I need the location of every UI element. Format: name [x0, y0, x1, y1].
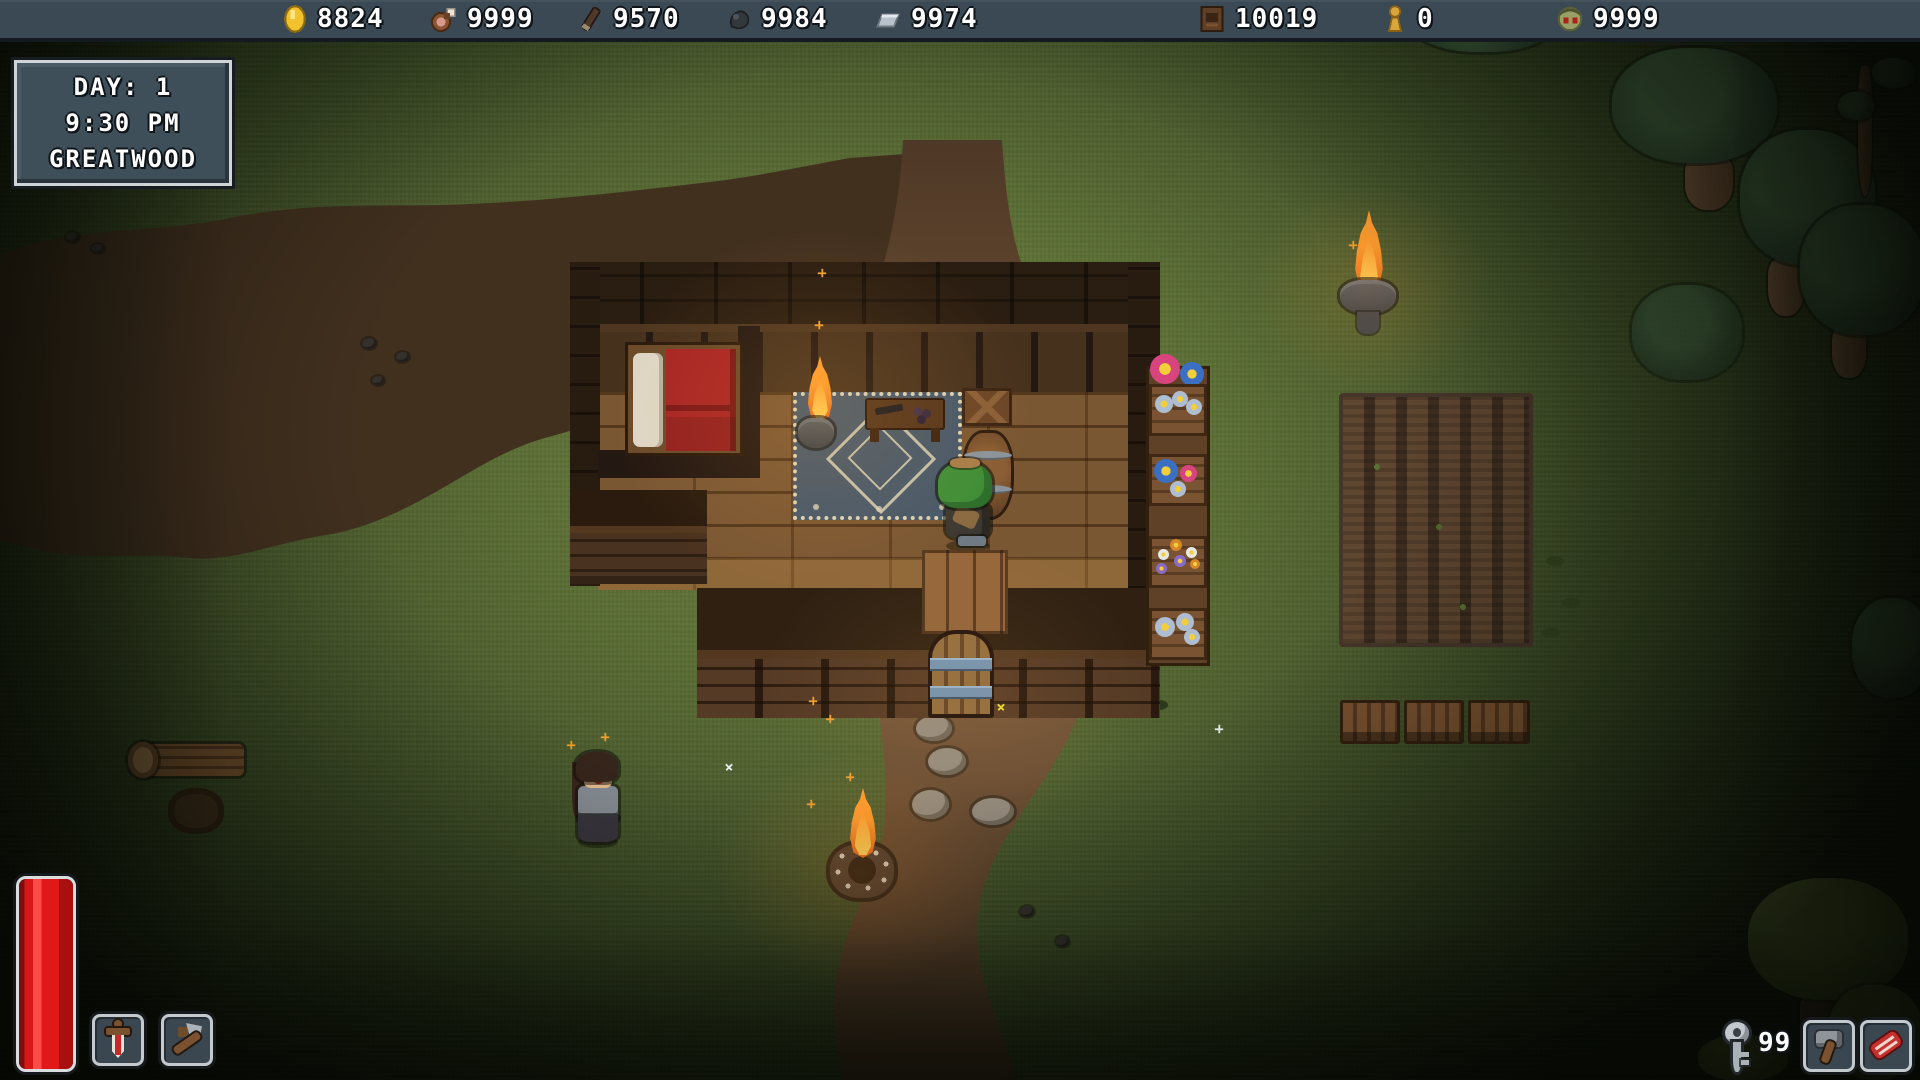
pebble — [92, 244, 104, 253]
pebble — [372, 376, 384, 385]
hotbar-slot-sword[interactable] — [92, 1014, 144, 1066]
campfire-flame — [848, 788, 878, 858]
resource-food: 9999 — [430, 4, 534, 34]
sparkle-icon — [1349, 241, 1357, 249]
zombie-head-icon — [1556, 4, 1584, 34]
day-label: DAY: 1 — [74, 69, 173, 105]
tree-canopy — [1612, 48, 1777, 163]
pebble — [362, 338, 376, 349]
sparkle-icon — [815, 321, 823, 329]
resource-value: 9974 — [911, 4, 978, 34]
stepping-stone — [916, 716, 952, 741]
fallen-log[interactable] — [128, 742, 246, 778]
drumstick-icon — [430, 4, 458, 34]
resource-value: 9999 — [467, 4, 534, 34]
tree-trunk — [1685, 155, 1733, 210]
sparkle-icon — [1215, 725, 1223, 733]
berries-on-table — [913, 407, 922, 416]
planter-box — [1149, 608, 1207, 660]
tree-trunk — [1768, 258, 1804, 316]
resource-value: 9999 — [1593, 4, 1660, 34]
campfire[interactable] — [826, 788, 900, 908]
npc-villager[interactable] — [570, 748, 626, 848]
planter-box — [1149, 536, 1207, 588]
sparkle-icon — [601, 733, 609, 741]
wood-table[interactable] — [1468, 700, 1530, 744]
crate-icon — [1198, 4, 1226, 34]
day-time-location-box: DAY: 1 9:30 PM GREATWOOD — [14, 60, 232, 186]
key-icon — [1720, 1022, 1754, 1074]
sword-icon — [103, 1022, 133, 1058]
key-count: 99 — [1758, 1028, 1791, 1058]
indoor-brazier[interactable] — [798, 418, 834, 448]
bed[interactable] — [625, 342, 743, 456]
sparkle-icon — [809, 697, 817, 705]
axe-tool-icon — [170, 1023, 204, 1057]
sparkle-icon — [807, 800, 815, 808]
tree-canopy — [1748, 878, 1908, 1000]
green-hood — [938, 462, 992, 508]
cabin — [570, 262, 1160, 718]
grass-tuft — [1562, 598, 1580, 608]
location-label: GREATWOOD — [49, 141, 197, 177]
sparkle-icon — [846, 773, 854, 781]
resource-coins: 8824 — [282, 4, 384, 34]
stepping-stone — [972, 798, 1014, 825]
sparkle-icon — [818, 269, 826, 277]
pebble — [396, 352, 409, 362]
gold-coin-icon — [282, 4, 308, 34]
grass-tuft — [1542, 628, 1560, 638]
farm-plot[interactable] — [1339, 393, 1533, 647]
crate[interactable] — [962, 388, 1012, 426]
flower-stand[interactable] — [1146, 366, 1210, 666]
resource-zombie-heads: 9999 — [1556, 4, 1660, 34]
sparkle-icon — [826, 715, 834, 723]
pebble — [1020, 906, 1034, 917]
stone-hammer-icon — [1812, 1029, 1846, 1063]
resource-value: 8824 — [317, 4, 384, 34]
wood-stick-icon — [578, 4, 604, 34]
stepping-stone — [912, 790, 949, 819]
raw-meat-icon — [1869, 1029, 1903, 1063]
tree-canopy — [1872, 58, 1916, 88]
bush — [1852, 598, 1920, 698]
stepping-stone — [928, 748, 966, 775]
health-fill — [19, 879, 73, 1069]
hotbar-slot-axe[interactable] — [161, 1014, 213, 1066]
resource-value: 10019 — [1235, 4, 1318, 34]
resource-idols: 0 — [1382, 4, 1434, 34]
bush — [1632, 285, 1742, 380]
gold-idol-icon — [1382, 4, 1408, 34]
cabin-door[interactable] — [928, 630, 994, 718]
sparkle-icon — [567, 741, 575, 749]
planter-box — [1149, 454, 1207, 506]
hotbar-slot-hammer[interactable] — [1803, 1020, 1855, 1072]
resource-stone: 9984 — [726, 4, 828, 34]
game-viewport: 8824 9999 9570 9984 — [0, 0, 1920, 1080]
grass-tuft — [1546, 556, 1564, 566]
planter-box — [1149, 384, 1207, 436]
resource-wood: 9570 — [578, 4, 680, 34]
resource-value: 9984 — [761, 4, 828, 34]
pebble — [1056, 936, 1069, 947]
resource-top-bar: 8824 9999 9570 9984 — [0, 0, 1920, 42]
pink-flower — [1150, 354, 1180, 384]
pebble — [66, 232, 79, 242]
hotbar-slot-meat[interactable] — [1860, 1020, 1912, 1072]
resource-value: 9570 — [613, 4, 680, 34]
time-label: 9:30 PM — [65, 105, 180, 141]
torch-brazier[interactable] — [1340, 210, 1400, 336]
cabin-porch — [922, 550, 1008, 634]
pillow — [633, 353, 663, 447]
blue-flower — [1180, 362, 1204, 386]
cabin-wing-wall — [570, 490, 707, 584]
stone-icon — [726, 4, 752, 34]
resource-value: 0 — [1417, 4, 1434, 34]
tree-canopy — [1838, 92, 1874, 120]
tree-stump[interactable] — [168, 788, 224, 834]
resource-iron: 9974 — [874, 4, 978, 34]
health-bar — [16, 876, 76, 1072]
tree-canopy — [1800, 205, 1920, 335]
key-indicator — [1720, 1022, 1754, 1074]
wood-table[interactable] — [1404, 700, 1464, 744]
red-blanket — [666, 349, 736, 451]
resource-crates: 10019 — [1198, 4, 1318, 34]
tree-trunk — [1858, 66, 1872, 196]
wood-table[interactable] — [1340, 700, 1400, 744]
cabin-top-wall — [570, 262, 1160, 332]
player-character[interactable] — [936, 460, 998, 550]
crafting-table[interactable] — [865, 398, 945, 442]
iron-ingot-icon — [874, 4, 902, 34]
